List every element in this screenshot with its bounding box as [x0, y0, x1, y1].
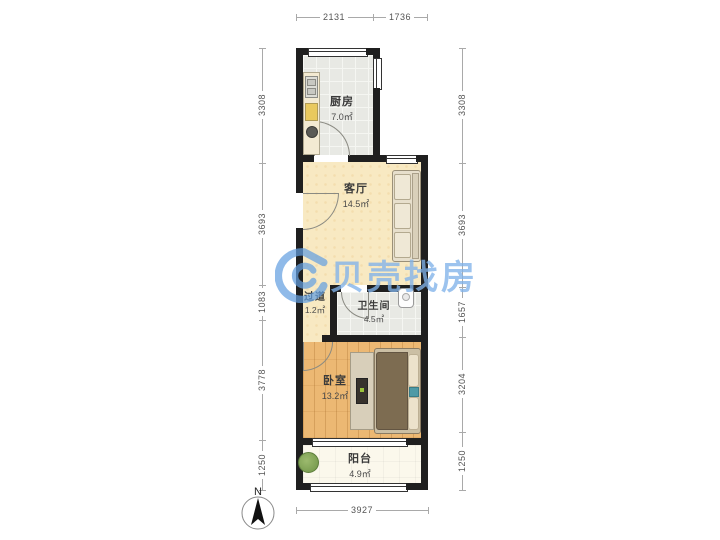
kitchen-stove-burner-2: [307, 88, 316, 95]
dim-top-2: 1736: [386, 12, 414, 22]
bed-blanket: [376, 352, 408, 430]
dim-left-3: 1083: [257, 288, 267, 316]
wall-kitchen-bottom-left: [296, 155, 314, 162]
dim-tick: [259, 163, 266, 164]
wall-kitchen-right-upper: [373, 48, 380, 58]
dim-tick: [459, 490, 466, 491]
dim-tick: [459, 163, 466, 164]
dim-right-4: 3204: [457, 370, 467, 398]
dim-right-3: 1657: [457, 298, 467, 326]
plant: [298, 452, 319, 473]
dim-tick: [459, 432, 466, 433]
dim-tick: [259, 320, 266, 321]
dim-tick: [296, 14, 297, 21]
dim-tick: [428, 507, 429, 514]
bedroom-name: 卧室: [322, 372, 349, 388]
dim-top-1: 2131: [320, 12, 348, 22]
dim-tick: [459, 48, 466, 49]
sofa-cushion: [394, 174, 411, 200]
wall-kitchen-bottom-right: [348, 155, 380, 162]
watermark-text: 贝壳找房: [330, 250, 478, 299]
kitchen-sink: [306, 126, 318, 138]
kitchen-window: [308, 48, 368, 57]
tv-indicator: [360, 388, 364, 392]
wall-balcony-top-right: [406, 438, 428, 445]
sofa-backrest: [412, 173, 419, 259]
balcony-label: 阳台 4.9㎡: [348, 450, 372, 480]
bedroom-area: 13.2㎡: [322, 389, 349, 402]
bed-nightstand: [409, 387, 419, 397]
dim-tick: [259, 48, 266, 49]
floor-plan: 厨房 7.0㎡ 客厅 14.5㎡ 过道 1.2㎡ 卫生间 4.5㎡ 卧室 13.…: [0, 0, 720, 540]
balcony-area: 4.9㎡: [348, 467, 372, 480]
kitchen-water-heater: [305, 103, 318, 121]
wall-balcony-top-left: [296, 438, 312, 445]
wall-bathroom-bottom: [330, 335, 428, 342]
wall-kitchen-right-lower: [373, 88, 380, 162]
balcony-window: [310, 483, 408, 492]
dim-left-4: 3778: [257, 366, 267, 394]
living-room-area: 14.5㎡: [343, 197, 370, 210]
living-room-label: 客厅 14.5㎡: [343, 180, 370, 210]
living-room-name: 客厅: [343, 180, 370, 196]
kitchen-area: 7.0㎡: [330, 110, 354, 123]
balcony-sliding-door: [312, 438, 408, 447]
bedroom-label: 卧室 13.2㎡: [322, 372, 349, 402]
dim-left-2: 3693: [257, 210, 267, 238]
dim-left-5: 1250: [257, 451, 267, 479]
bed-pillow-2: [408, 397, 419, 430]
kitchen-stove-burner: [307, 79, 316, 86]
dim-tick: [459, 337, 466, 338]
dim-tick: [259, 440, 266, 441]
balcony-name: 阳台: [348, 450, 372, 466]
sofa-cushion-2: [394, 203, 411, 229]
wall-left-upper: [296, 48, 303, 193]
dim-tick: [427, 14, 428, 21]
beike-logo-icon: [275, 245, 333, 303]
kitchen-side-window: [373, 58, 382, 90]
hallway-area: 1.2㎡: [304, 304, 326, 316]
wall-balcony-bottom-left: [296, 483, 310, 490]
dim-right-2: 3693: [457, 211, 467, 239]
dim-tick: [296, 507, 297, 514]
dim-right-1: 3308: [457, 91, 467, 119]
bathroom-area: 4.5㎡: [358, 313, 391, 325]
living-room-window: [386, 155, 418, 164]
dim-tick: [259, 285, 266, 286]
dim-left-1: 3308: [257, 91, 267, 119]
compass-icon: [240, 495, 276, 531]
kitchen-label: 厨房 7.0㎡: [330, 93, 354, 123]
bed-pillow: [408, 354, 419, 387]
kitchen-name: 厨房: [330, 93, 354, 109]
dim-right-5: 1250: [457, 447, 467, 475]
dim-bottom: 3927: [348, 505, 376, 515]
wall-balcony-bottom-right: [406, 483, 428, 490]
bathroom-name: 卫生间: [358, 297, 391, 312]
bathroom-label: 卫生间 4.5㎡: [358, 297, 391, 325]
